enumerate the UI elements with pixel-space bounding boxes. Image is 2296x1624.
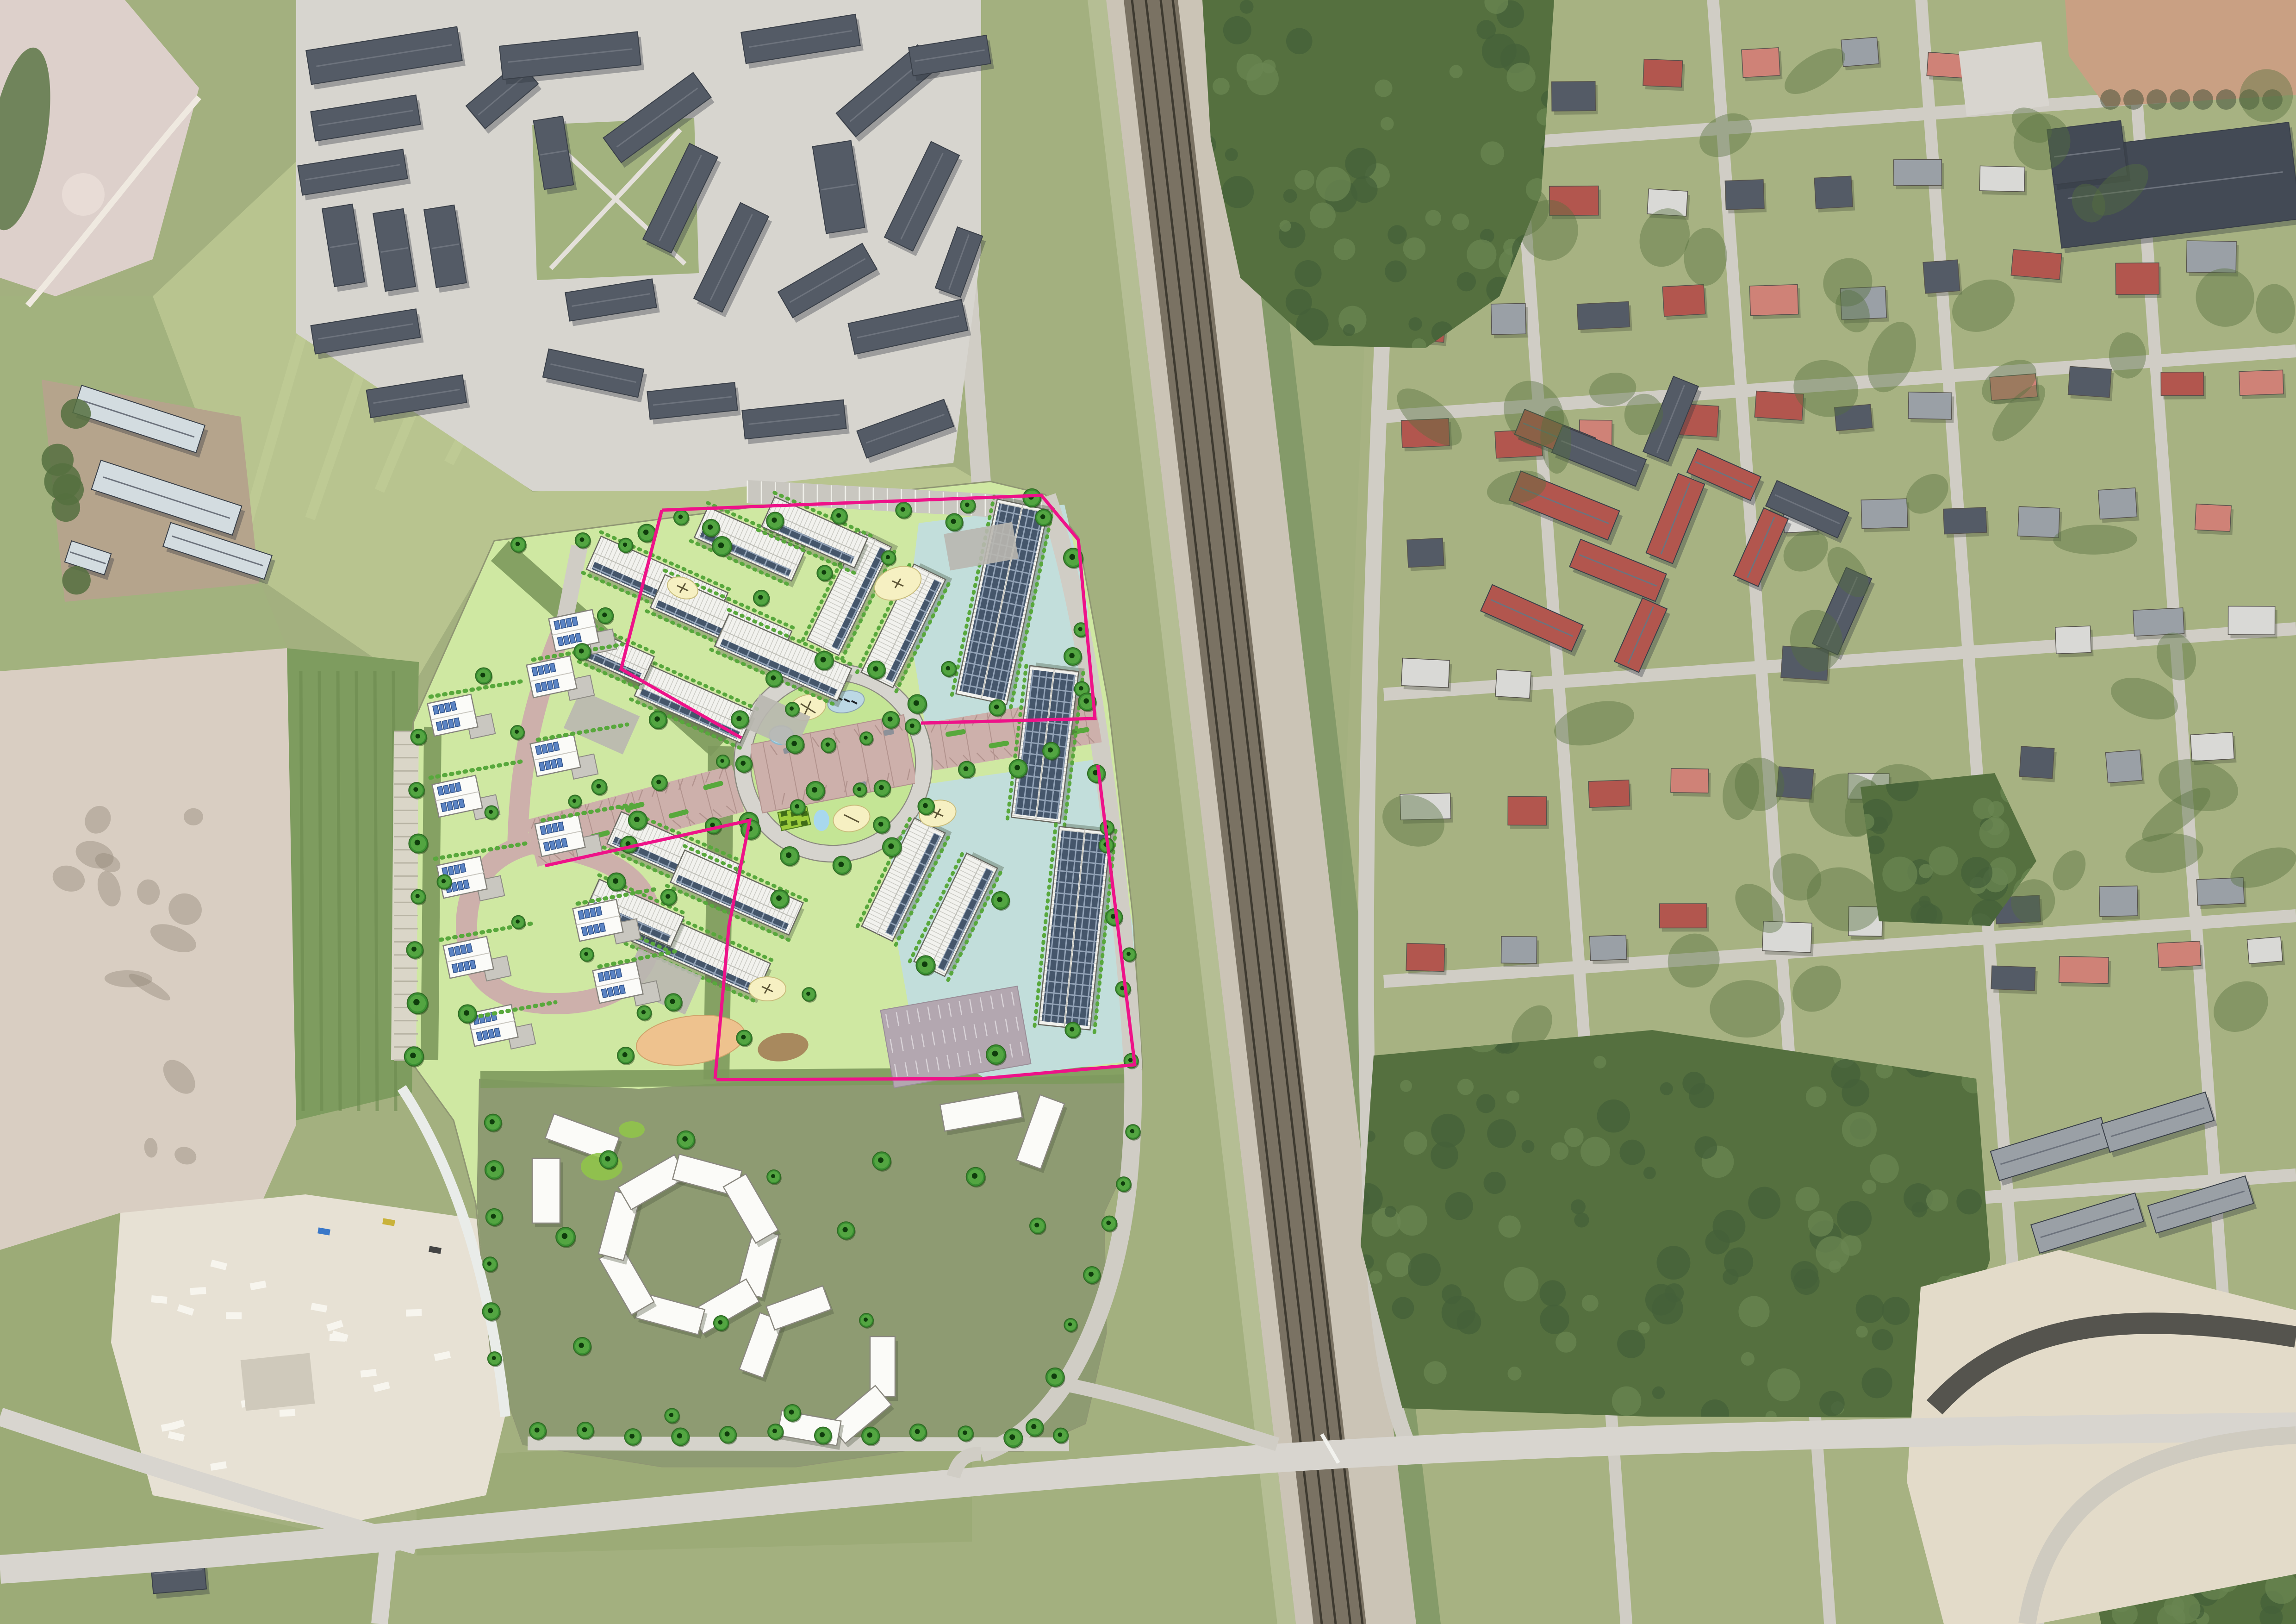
tree-crown — [1979, 818, 2010, 848]
tree-core — [623, 543, 627, 547]
tree-core — [901, 507, 905, 512]
tree-crown — [1343, 324, 1355, 336]
tree-core — [873, 666, 878, 671]
tree-crown — [1279, 220, 1291, 232]
tree-crown — [1656, 1246, 1690, 1280]
tree-crown — [1213, 78, 1230, 95]
tree-crown — [1424, 1361, 1446, 1384]
tree-crown — [1540, 1305, 1569, 1334]
tree-crown — [1481, 141, 1504, 165]
tree-crown — [1294, 170, 1314, 190]
tree-core — [1034, 1223, 1039, 1227]
tree-canopy — [2109, 332, 2147, 379]
house — [1577, 302, 1630, 330]
tree-core — [535, 1428, 540, 1433]
tree-core — [965, 502, 970, 507]
tree-core — [1069, 653, 1074, 658]
tree-crown — [1956, 1189, 1982, 1215]
house — [1588, 780, 1630, 808]
tree-core — [864, 736, 867, 739]
tree-crown — [1919, 896, 1931, 908]
tree-crown — [1638, 1322, 1649, 1333]
tree-crown — [1796, 1187, 1820, 1211]
tree-core — [622, 1052, 628, 1057]
tree-core — [1083, 698, 1089, 703]
tree-core — [964, 766, 969, 771]
tree-core — [1078, 627, 1083, 631]
house — [1749, 285, 1798, 316]
house — [2133, 608, 2184, 636]
tree-core — [416, 894, 420, 898]
tree-crown — [1856, 1326, 1867, 1337]
house — [1401, 658, 1450, 688]
tree-core — [413, 999, 419, 1005]
tree-crown — [1445, 1192, 1473, 1220]
tree-core — [654, 716, 660, 722]
tree-crown — [1837, 1201, 1872, 1236]
house — [1495, 669, 1531, 698]
material-pile — [406, 1309, 422, 1317]
tree-core — [491, 1214, 496, 1219]
tree-core — [1079, 686, 1083, 691]
house — [1406, 943, 1445, 972]
cleared-ground-west — [0, 648, 296, 1250]
tree-crown — [1499, 1215, 1521, 1237]
tree-core — [1040, 514, 1045, 519]
tree-core — [740, 761, 746, 766]
tree-core — [596, 784, 601, 788]
house — [2247, 937, 2283, 964]
tree-core — [1070, 554, 1076, 560]
north-residential-district — [296, 0, 994, 491]
tree-core — [1014, 765, 1020, 770]
tree-crown — [1425, 210, 1441, 225]
forest-floor — [1361, 1030, 1990, 1418]
tree-core — [582, 1427, 587, 1432]
tree-core — [914, 700, 919, 706]
tree-crown — [1476, 20, 1496, 39]
tree-crown — [1539, 1280, 1566, 1306]
tree-core — [771, 1174, 775, 1178]
tree-core — [776, 895, 782, 901]
forest-patch — [1350, 1016, 1996, 1428]
tree-crown — [1724, 1248, 1753, 1277]
tree-crown — [1652, 1387, 1665, 1399]
tree-core — [562, 1233, 568, 1239]
tree-crown — [1456, 272, 1476, 292]
tree-core — [464, 1010, 469, 1016]
tree-crown — [1617, 1330, 1645, 1358]
tree-crown — [1316, 167, 1350, 201]
house — [1742, 48, 1780, 78]
tree-core — [878, 822, 884, 827]
tree-core — [812, 787, 817, 793]
tree-crown — [1571, 1199, 1586, 1214]
tree-core — [491, 1166, 496, 1172]
tree-core — [826, 743, 830, 747]
house — [2018, 506, 2060, 537]
house — [1671, 768, 1709, 793]
farm-tree — [62, 566, 90, 594]
tree-crown — [1574, 1212, 1589, 1227]
tree-crown — [1240, 0, 1254, 14]
tree-crown — [1652, 1293, 1683, 1324]
tree-crown — [1237, 54, 1263, 81]
tree-core — [411, 947, 417, 952]
tree-core — [670, 999, 675, 1004]
tree-crown — [1506, 1091, 1519, 1104]
olive-edge-road — [528, 1443, 1069, 1444]
tree-core — [487, 1262, 492, 1266]
house — [1991, 966, 2035, 990]
tree-crown — [1741, 1352, 1755, 1366]
house — [1861, 499, 1908, 528]
tree-crown — [1345, 148, 1376, 180]
tree-crown — [1286, 28, 1313, 54]
tree-crown — [1882, 856, 1917, 892]
tree-crown — [1381, 117, 1394, 131]
tree-core — [656, 780, 661, 784]
crop-row — [338, 671, 340, 1111]
house — [2019, 746, 2054, 779]
tree-core — [643, 530, 648, 535]
tree-crown — [1286, 289, 1312, 315]
tree-crown — [1870, 1154, 1899, 1183]
house — [1407, 538, 1444, 567]
tree-crown — [1310, 202, 1336, 228]
tree-crown — [1457, 1079, 1474, 1095]
pitch-tree-shadow — [2193, 89, 2213, 110]
house — [2239, 370, 2284, 395]
tree-core — [772, 518, 777, 523]
tree-crown — [1507, 1367, 1521, 1380]
tree-core — [972, 1173, 977, 1179]
tree-core — [736, 716, 741, 721]
tree-core — [720, 759, 724, 762]
tree-core — [1089, 1272, 1094, 1277]
tree-core — [820, 1432, 825, 1437]
house — [1894, 159, 1942, 185]
tree-core — [416, 734, 420, 738]
tree-core — [789, 1410, 794, 1415]
tree-core — [836, 513, 841, 518]
tree-crown — [1816, 1236, 1849, 1270]
tree-crown — [1806, 1087, 1827, 1107]
tree-crown — [1225, 148, 1238, 161]
tree-crown — [1580, 1137, 1610, 1167]
pitch-tree-shadow — [2170, 89, 2190, 110]
tree-core — [1009, 1434, 1015, 1440]
tree-crown — [1882, 1297, 1910, 1325]
tree-core — [741, 1035, 746, 1039]
house — [2011, 250, 2062, 280]
tree-core — [1068, 1322, 1072, 1326]
tree-crown — [1911, 1202, 1927, 1218]
tree-crown — [1861, 1368, 1892, 1398]
house — [1979, 166, 2025, 192]
tree-crown — [1387, 1252, 1412, 1277]
tree-core — [1031, 1424, 1036, 1429]
tree-core — [878, 1157, 884, 1163]
tree-core — [725, 1431, 730, 1437]
tree-core — [857, 787, 861, 791]
tree-crown — [1457, 1310, 1481, 1335]
pitch-tree-shadow — [2100, 89, 2121, 110]
material-pile — [330, 1334, 346, 1342]
tree-crown — [1334, 238, 1356, 260]
house — [2195, 504, 2231, 532]
pitch-tree-shadow — [2147, 89, 2167, 110]
house — [1501, 937, 1537, 963]
tree-core — [579, 1343, 584, 1348]
tree-crown — [1452, 213, 1469, 230]
map-canvas — [0, 0, 2296, 1624]
tree-core — [771, 675, 776, 681]
tree-crown — [1973, 798, 1994, 819]
house — [2190, 732, 2234, 762]
tree-crown — [1767, 1368, 1800, 1401]
house — [1552, 81, 1596, 111]
tree-core — [1052, 1374, 1057, 1379]
tree-crown — [1484, 1172, 1506, 1194]
tree-core — [992, 1051, 998, 1057]
tree-core — [1130, 1129, 1134, 1133]
tree-crown — [1862, 1180, 1877, 1194]
tree-core — [963, 1430, 967, 1435]
tree-crown — [1919, 864, 1933, 878]
house — [2158, 941, 2201, 968]
pitch-tree-shadow — [2216, 89, 2236, 110]
tree-crown — [1831, 1059, 1860, 1088]
tree-core — [791, 741, 797, 746]
tree-core — [806, 992, 810, 996]
tree-core — [923, 803, 928, 808]
tree-core — [669, 1413, 673, 1417]
tree-core — [922, 962, 927, 967]
tree-core — [867, 1432, 872, 1437]
tree-core — [946, 666, 951, 671]
tree-core — [1126, 952, 1131, 956]
tree-core — [492, 1356, 496, 1360]
tree-core — [1106, 1220, 1111, 1225]
tree-crown — [1408, 1253, 1441, 1286]
tree-crown — [1619, 1140, 1645, 1165]
tree-crown — [1705, 1230, 1730, 1255]
tree-core — [879, 785, 884, 790]
lawn-circle — [619, 1121, 645, 1138]
tree-crown — [1404, 1131, 1427, 1155]
tree-crown — [1551, 1142, 1568, 1160]
tree-core — [516, 542, 520, 546]
tree-crown — [1593, 1056, 1606, 1068]
tree-core — [864, 1318, 868, 1322]
tree-crown — [1926, 1189, 1948, 1211]
house — [1725, 180, 1764, 210]
tree-core — [682, 1136, 688, 1142]
house — [1590, 935, 1627, 961]
tree-crown — [1222, 176, 1254, 208]
house — [1643, 59, 1683, 87]
tree-core — [572, 799, 576, 803]
house — [2161, 372, 2203, 396]
tree-core — [821, 657, 826, 662]
material-pile — [151, 1295, 167, 1304]
tree-core — [516, 919, 520, 924]
tree-crown — [1403, 237, 1425, 260]
tree-crown — [1450, 65, 1463, 78]
tree-core — [602, 612, 607, 617]
material-pile — [190, 1287, 206, 1295]
tree-crown — [1504, 1267, 1538, 1301]
tree-crown — [1872, 1329, 1893, 1350]
crop-row — [375, 671, 377, 1111]
tree-crown — [1612, 1387, 1641, 1416]
tree-core — [790, 706, 794, 711]
tree-core — [758, 595, 763, 600]
house — [2186, 241, 2236, 273]
tree-crown — [1929, 846, 1958, 875]
house — [1908, 392, 1952, 419]
tree-crown — [1375, 80, 1392, 97]
tree-core — [580, 537, 585, 542]
tree-core — [677, 1433, 682, 1438]
tree-crown — [1369, 1271, 1382, 1284]
tree-crown — [1385, 1206, 1396, 1218]
tree-core — [915, 1429, 920, 1434]
tree-core — [997, 897, 1002, 902]
house — [2106, 750, 2142, 783]
tree-core — [415, 840, 420, 845]
tree-core — [886, 555, 890, 559]
tree-core — [786, 852, 791, 858]
farm-tree — [42, 444, 74, 476]
tree-core — [413, 787, 418, 792]
farm-tree — [52, 474, 84, 506]
tree-crown — [1597, 1099, 1630, 1133]
tree-core — [515, 730, 519, 734]
tree-crown — [1392, 1297, 1414, 1319]
tree-crown — [1487, 1119, 1516, 1148]
crop-row — [301, 671, 303, 1111]
crop-row — [319, 671, 322, 1111]
tree-core — [584, 952, 588, 956]
tree-core — [488, 1308, 493, 1313]
tree-crown — [1400, 1080, 1412, 1092]
house — [1508, 797, 1547, 825]
material-pile — [280, 1409, 296, 1417]
tree-core — [718, 1320, 723, 1325]
tree-crown — [1738, 1296, 1769, 1327]
tree-core — [718, 543, 724, 549]
tree-core — [888, 717, 893, 722]
tree-core — [579, 649, 584, 654]
tree-core — [1058, 1432, 1063, 1437]
tree-crown — [1294, 260, 1321, 287]
house — [2116, 263, 2159, 295]
future-building — [532, 1158, 560, 1223]
tree-core — [666, 894, 670, 899]
tree-core — [838, 862, 844, 867]
house — [2098, 488, 2137, 519]
tree-crown — [1660, 1082, 1673, 1095]
crop-row — [356, 671, 359, 1111]
parking-lot — [1959, 42, 2049, 116]
tree-core — [480, 673, 485, 678]
house — [1662, 285, 1705, 317]
house — [1660, 904, 1707, 928]
tree-crown — [1476, 1094, 1495, 1113]
house — [1841, 37, 1879, 67]
tree-crown — [1351, 176, 1378, 203]
tree-crown — [1506, 62, 1535, 91]
tree-crown — [1842, 1112, 1877, 1147]
pitch-tree-shadow — [2123, 89, 2144, 110]
parking-west — [404, 731, 406, 1060]
tree-crown — [1748, 1187, 1780, 1219]
tree-core — [888, 843, 894, 849]
site-slab — [241, 1353, 315, 1411]
tree-crown — [1442, 1284, 1462, 1304]
tree-core — [843, 1227, 848, 1232]
house — [2228, 606, 2275, 635]
tree-crown — [1408, 317, 1422, 331]
tree-crown — [1283, 189, 1297, 203]
aerial-masterplan-map — [0, 0, 2296, 1624]
tree-crown — [1522, 1140, 1535, 1153]
tree-core — [1048, 748, 1053, 753]
tree-core — [1128, 1058, 1132, 1062]
house — [1923, 260, 1960, 294]
tree-core — [605, 1156, 610, 1162]
house — [2068, 366, 2112, 397]
tree-core — [708, 525, 713, 530]
tree-crown — [1388, 225, 1406, 244]
road-branch-down — [380, 1546, 388, 1624]
tree-core — [1121, 1181, 1125, 1186]
tree-crown — [1431, 1114, 1465, 1148]
tree-core — [1070, 1027, 1074, 1031]
tree-crown — [1397, 1206, 1427, 1236]
tree-crown — [1643, 1167, 1656, 1179]
tree-crown — [2171, 1594, 2201, 1624]
tree-crown — [1223, 16, 1251, 44]
tree-core — [641, 1010, 646, 1014]
farm-tree — [61, 399, 91, 429]
tree-crown — [1694, 1136, 1717, 1159]
tree-crown — [1791, 1261, 1818, 1289]
tree-core — [613, 878, 618, 884]
tree-crown — [1961, 857, 1992, 888]
house — [2099, 886, 2138, 917]
tree-crown — [1582, 1295, 1599, 1312]
pitch-circle — [62, 173, 105, 216]
tree-core — [489, 810, 493, 814]
house — [1814, 176, 1853, 209]
house — [2055, 626, 2091, 654]
tree-core — [634, 817, 640, 822]
pond — [814, 810, 829, 831]
tree-core — [910, 724, 915, 728]
tree-core — [442, 879, 446, 883]
tree-crown — [1682, 1072, 1705, 1095]
house — [2059, 956, 2109, 984]
tree-crown — [1564, 1128, 1584, 1147]
tree-core — [490, 1119, 495, 1124]
tree-core — [821, 570, 826, 575]
tree-core — [951, 519, 956, 524]
tree-crown — [1556, 1332, 1576, 1353]
tree-crown — [1385, 261, 1406, 282]
